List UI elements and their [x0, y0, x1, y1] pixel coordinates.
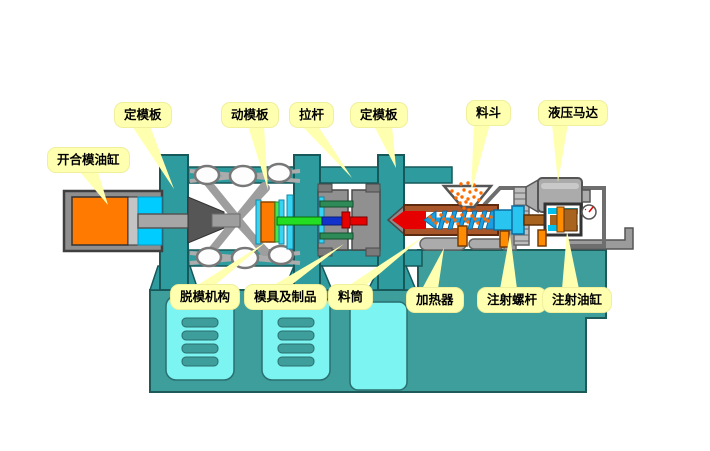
callout-fixed-platen: 定模板: [350, 102, 408, 128]
callout-hopper: 料斗: [466, 100, 511, 126]
piston-block: [564, 209, 577, 231]
return-pin-bottom: [320, 233, 353, 239]
melt-chamber: [404, 211, 426, 229]
callout-clamp-cylinder: 开合模油缸: [47, 147, 130, 173]
core-rod: [322, 217, 342, 225]
tail-hopper: [471, 124, 490, 193]
machine-diagram: [0, 0, 710, 451]
callout-moving-platen: 动模板: [221, 102, 279, 128]
injection-piston: [557, 207, 564, 232]
ejector-block: [261, 202, 275, 242]
callout-ejector-mechanism: 脱模机构: [170, 284, 240, 310]
callout-tie-bar: 拉杆: [289, 102, 334, 128]
callout-injection-cylinder: 注射油缸: [542, 287, 612, 313]
carriage-cylinder-2: [469, 239, 504, 249]
pressure-gauge: [581, 205, 596, 219]
clamp-cylinder-oil: [72, 197, 128, 245]
sprue-puck: [342, 212, 350, 228]
return-pin-top: [320, 201, 353, 207]
clamp-piston: [128, 197, 138, 245]
callout-rear-platen: 定模板: [114, 102, 172, 128]
injection-cylinder: [545, 204, 581, 235]
tail-hydraulic-motor: [552, 124, 568, 182]
sprue-runner: [350, 217, 367, 225]
crosshead: [212, 214, 240, 227]
callout-mold-and-product: 模具及制品: [244, 284, 327, 310]
callout-injection-screw: 注射螺杆: [477, 287, 547, 313]
callout-heater: 加热器: [406, 287, 464, 313]
mold-clamp-top-b: [366, 184, 380, 192]
callout-barrel: 料筒: [328, 284, 373, 310]
mold-clamp-bottom-b: [366, 248, 380, 256]
ejector-rod: [277, 217, 322, 225]
shank-collar: [512, 206, 524, 234]
callout-hydraulic-motor: 液压马达: [538, 100, 608, 126]
side-panel: [350, 302, 407, 390]
mold-clamp-top-a: [318, 184, 332, 192]
injection-molding-diagram: 开合模油缸 定模板 动模板 拉杆 定模板 料斗 液压马达 脱模机构 模具及制品 …: [0, 0, 710, 451]
